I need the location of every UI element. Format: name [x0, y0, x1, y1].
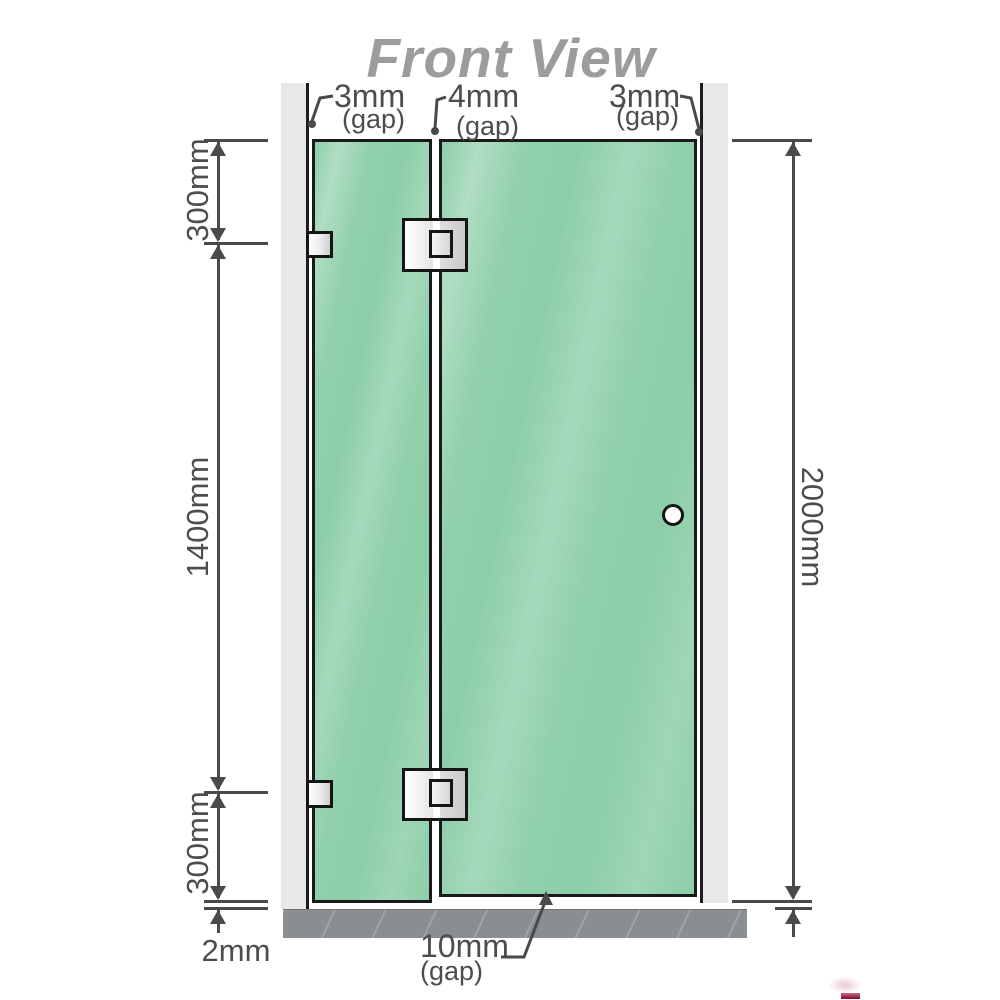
gap-label-top-middle: 4mm: [448, 80, 519, 112]
floor-base: [283, 909, 747, 938]
arrowhead: [785, 886, 801, 900]
dim-tick: [732, 900, 812, 903]
watermark-red-fragment: [841, 993, 860, 999]
hinge-bottom-gap-strip-lower: [433, 806, 440, 818]
gap-note-top-middle: (gap): [456, 113, 519, 140]
arrowhead: [210, 777, 226, 791]
wall-bracket-bottom: [306, 780, 333, 808]
arrowhead: [785, 142, 801, 156]
hinge-top-gap-strip-lower: [433, 257, 440, 269]
right-wall: [703, 83, 728, 903]
watermark-smudge: [828, 976, 862, 994]
dim-line-left-300-bottom: [217, 794, 220, 898]
gap-note-top-left: (gap): [342, 106, 405, 133]
door-knob: [662, 504, 684, 526]
dim-line-left-300-top: [217, 142, 220, 240]
dim-line-left-1400: [217, 245, 220, 789]
gap-note-top-right: (gap): [616, 103, 679, 130]
arrowhead: [210, 910, 226, 924]
door-glass-panel: [439, 139, 697, 897]
hinge-bottom-tongue: [429, 779, 453, 807]
dim-tick: [204, 900, 268, 903]
front-view-diagram: Front View 300mm 1400mm 300mm: [0, 0, 1000, 1000]
gap-note-bottom: (gap): [420, 958, 483, 985]
hinge-top-tongue: [429, 230, 453, 258]
left-wall: [281, 83, 306, 909]
wall-bracket-top: [306, 231, 333, 258]
arrowhead: [785, 910, 801, 924]
arrowhead: [210, 245, 226, 259]
